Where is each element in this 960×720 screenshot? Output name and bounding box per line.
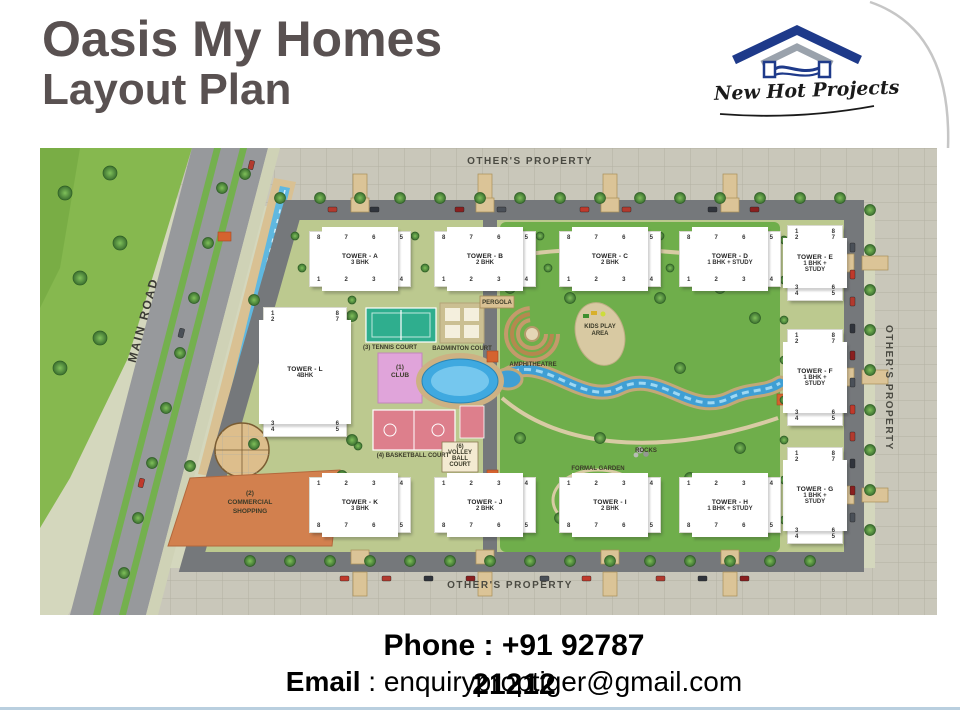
car-icon (850, 270, 855, 279)
tower-name: TOWER - F (797, 368, 833, 375)
tree-icon (865, 325, 876, 336)
car-icon (850, 513, 855, 522)
tree-icon (203, 238, 214, 249)
unit-numbers: 8765 (567, 523, 653, 529)
tree-icon (865, 525, 876, 536)
tree-icon (780, 436, 788, 444)
tree-icon (189, 293, 200, 304)
tree-icon (175, 348, 186, 359)
volleyball-court-label: (6) VOLLEY BALL COURT (442, 444, 478, 468)
tree-icon (795, 193, 806, 204)
pergola-label: PERGOLA (481, 300, 513, 307)
car-icon (850, 405, 855, 414)
tower-a: 8765 TOWER - A 3 BHK1234 (310, 232, 410, 286)
tower-type: 2 BHK (601, 506, 619, 512)
tree-icon (245, 556, 256, 567)
tree-icon (58, 186, 72, 200)
tower-type: 1 BHK + STUDY (795, 261, 835, 273)
rocks-label: ROCKS (628, 448, 664, 455)
tower-l: 1827 TOWER - L 4BHK3645 (264, 308, 346, 436)
tower-label: TOWER - J 2 BHK (442, 487, 528, 523)
car-icon (850, 486, 855, 495)
car-icon (622, 207, 631, 212)
tree-icon (865, 205, 876, 216)
tree-icon (298, 264, 306, 272)
tree-icon (595, 433, 606, 444)
car-icon (698, 576, 707, 581)
tree-icon (515, 193, 526, 204)
tree-icon (525, 556, 536, 567)
tree-icon (475, 193, 486, 204)
tower-type: 3 BHK (351, 506, 369, 512)
tower-c: 8765 TOWER - C 2 BHK1234 (560, 232, 660, 286)
tree-icon (750, 313, 761, 324)
others-property-bottom-label: OTHER'S PROPERTY (400, 580, 620, 591)
tower-label: TOWER - D 1 BHK + STUDY (687, 241, 773, 277)
tree-icon (595, 193, 606, 204)
tower-label: TOWER - H 1 BHK + STUDY (687, 487, 773, 523)
car-icon (340, 576, 349, 581)
email-line: Email : enquiryproptiger@gmail.com (34, 666, 960, 698)
car-icon (850, 297, 855, 306)
tower-label: TOWER - A 3 BHK (317, 241, 403, 277)
others-property-top-label: OTHER'S PROPERTY (420, 156, 640, 167)
tree-icon (485, 556, 496, 567)
unit-numbers: 1234 (317, 277, 403, 283)
tree-icon (515, 433, 526, 444)
tower-label: TOWER - F 1 BHK + STUDY (795, 345, 835, 410)
tower-name: TOWER - L (287, 366, 323, 373)
tower-label: TOWER - B 2 BHK (442, 241, 528, 277)
tree-icon (249, 295, 260, 306)
car-icon (850, 351, 855, 360)
tree-icon (555, 193, 566, 204)
tree-icon (666, 264, 674, 272)
tree-icon (53, 361, 67, 375)
amphitheatre-label: AMPHITHEATRE (498, 362, 568, 369)
car-icon (382, 576, 391, 581)
title-line1: Oasis My Homes (42, 12, 442, 66)
tree-icon (113, 236, 127, 250)
tree-icon (536, 232, 544, 240)
car-icon (708, 207, 717, 212)
logo-brand-text: New Hot Projects (714, 77, 883, 105)
tree-icon (725, 556, 736, 567)
commercial-shopping-label: (2) COMMERCIAL SHOPPING (200, 490, 300, 516)
tree-icon (73, 271, 87, 285)
tower-name: TOWER - K (342, 499, 378, 506)
company-logo: New Hot Projects (712, 18, 882, 114)
tower-b: 8765 TOWER - B 2 BHK1234 (435, 232, 535, 286)
tree-icon (365, 556, 376, 567)
tower-label: TOWER - L 4BHK (271, 323, 339, 421)
tree-icon (435, 193, 446, 204)
tree-icon (133, 513, 144, 524)
tree-icon (755, 193, 766, 204)
tower-label: TOWER - C 2 BHK (567, 241, 653, 277)
slide: Oasis My Homes Layout Plan New Hot Proje… (0, 0, 960, 720)
tree-icon (348, 296, 356, 304)
tree-icon (93, 331, 107, 345)
club-label: (1) CLUB (378, 364, 422, 381)
car-icon (850, 243, 855, 252)
tower-type: 3 BHK (351, 260, 369, 266)
car-icon (370, 207, 379, 212)
tower-type: 1 BHK + STUDY (795, 375, 835, 387)
tower-name: TOWER - J (467, 499, 502, 506)
tree-icon (411, 232, 419, 240)
tree-icon (347, 435, 358, 446)
tower-d: 8765 TOWER - D 1 BHK + STUDY1234 (680, 232, 780, 286)
tree-icon (565, 556, 576, 567)
unit-numbers: 1234 (567, 277, 653, 283)
unit-numbers: 45 (271, 427, 339, 433)
car-icon (850, 378, 855, 387)
tree-icon (655, 293, 666, 304)
badminton-court-label: BADMINTON COURT (430, 346, 494, 353)
tree-icon (835, 193, 846, 204)
tree-icon (217, 183, 228, 194)
tower-name: TOWER - C (592, 253, 628, 260)
tower-name: TOWER - G (797, 486, 834, 493)
email-separator: : (361, 666, 384, 697)
tree-icon (635, 193, 646, 204)
site-marker (218, 232, 231, 241)
tower-name: TOWER - D (712, 253, 748, 260)
tower-type: 1 BHK + STUDY (795, 493, 835, 505)
tree-icon (565, 293, 576, 304)
tree-icon (249, 439, 260, 450)
car-icon (850, 324, 855, 333)
tower-h: 1234 TOWER - H 1 BHK + STUDY8765 (680, 478, 780, 532)
tower-name: TOWER - B (467, 253, 503, 260)
tower-label: TOWER - I 2 BHK (567, 487, 653, 523)
tree-icon (805, 556, 816, 567)
tree-icon (275, 193, 286, 204)
tower-type: 2 BHK (601, 260, 619, 266)
tower-k: 1234 TOWER - K 3 BHK8765 (310, 478, 410, 532)
car-icon (580, 207, 589, 212)
tower-type: 4BHK (297, 373, 313, 379)
tree-icon (675, 193, 686, 204)
unit-numbers: 8765 (442, 523, 528, 529)
car-icon (850, 432, 855, 441)
tree-icon (161, 403, 172, 414)
tower-type: 2 BHK (476, 260, 494, 266)
tree-icon (715, 193, 726, 204)
email-value: enquiryproptiger@gmail.com (384, 666, 742, 697)
tower-label: TOWER - K 3 BHK (317, 487, 403, 523)
car-icon (497, 207, 506, 212)
car-icon (656, 576, 665, 581)
tower-name: TOWER - A (342, 253, 378, 260)
email-label: Email (286, 666, 361, 697)
tree-icon (355, 193, 366, 204)
tower-j: 1234 TOWER - J 2 BHK8765 (435, 478, 535, 532)
tree-icon (735, 443, 746, 454)
entry-gate (353, 572, 367, 596)
tower-e: 1827 TOWER - E 1 BHK + STUDY3645 (788, 226, 842, 300)
tower-label: TOWER - G 1 BHK + STUDY (795, 463, 835, 528)
tree-icon (675, 363, 686, 374)
tree-icon (865, 405, 876, 416)
car-icon (455, 207, 464, 212)
tower-name: TOWER - E (797, 254, 833, 261)
tower-name: TOWER - I (593, 499, 626, 506)
tower-name: TOWER - H (712, 499, 748, 506)
logo-underline (718, 104, 878, 118)
unit-numbers: 1234 (687, 277, 773, 283)
tree-icon (421, 264, 429, 272)
tree-icon (685, 556, 696, 567)
tree-icon (865, 485, 876, 496)
tower-i: 1234 TOWER - I 2 BHK8765 (560, 478, 660, 532)
tree-icon (147, 458, 158, 469)
entry-gate (723, 572, 737, 596)
unit-numbers: 45 (795, 416, 835, 422)
tree-icon (325, 556, 336, 567)
car-icon (750, 207, 759, 212)
title-line2: Layout Plan (42, 66, 442, 114)
tree-icon (605, 556, 616, 567)
house-handshake-icon (712, 18, 882, 84)
tower-f: 1827 TOWER - F 1 BHK + STUDY3645 (788, 330, 842, 425)
tree-icon (865, 365, 876, 376)
tower-type: 1 BHK + STUDY (707, 506, 752, 512)
tree-icon (315, 193, 326, 204)
tree-icon (865, 445, 876, 456)
kids-play-area-label: KIDS PLAY AREA (576, 324, 624, 338)
tree-icon (544, 264, 552, 272)
page-title: Oasis My Homes Layout Plan (42, 12, 442, 114)
tree-icon (291, 232, 299, 240)
tower-type: 2 BHK (476, 506, 494, 512)
tower-g: 1827 TOWER - G 1 BHK + STUDY3645 (788, 448, 842, 543)
tree-icon (765, 556, 776, 567)
tree-icon (405, 556, 416, 567)
unit-numbers: 45 (795, 291, 835, 297)
car-icon (740, 576, 749, 581)
tree-icon (395, 193, 406, 204)
slide-footer-line (0, 707, 960, 710)
unit-numbers: 8765 (317, 523, 403, 529)
tower-label: TOWER - E 1 BHK + STUDY (795, 241, 835, 285)
unit-numbers: 8765 (687, 523, 773, 529)
tree-icon (645, 556, 656, 567)
car-icon (328, 207, 337, 212)
tree-icon (865, 285, 876, 296)
tree-icon (185, 461, 196, 472)
tree-icon (445, 556, 456, 567)
tree-icon (103, 166, 117, 180)
formal-garden-label: FORMAL GARDEN (562, 466, 634, 473)
tree-icon (780, 316, 788, 324)
tree-icon (119, 568, 130, 579)
tower-type: 1 BHK + STUDY (707, 260, 752, 266)
tennis-court-label: (3) TENNIS COURT (336, 345, 444, 352)
tree-icon (865, 245, 876, 256)
car-icon (850, 459, 855, 468)
tree-icon (285, 556, 296, 567)
tree-icon (240, 169, 251, 180)
phone-line-1: Phone : +91 92787 (34, 629, 960, 663)
others-property-right-label: OTHER'S PROPERTY (878, 268, 898, 508)
layout-plan-map: OTHER'S PROPERTY OTHER'S PROPERTY OTHER'… (40, 148, 937, 615)
unit-numbers: 1234 (442, 277, 528, 283)
unit-numbers: 45 (795, 534, 835, 540)
